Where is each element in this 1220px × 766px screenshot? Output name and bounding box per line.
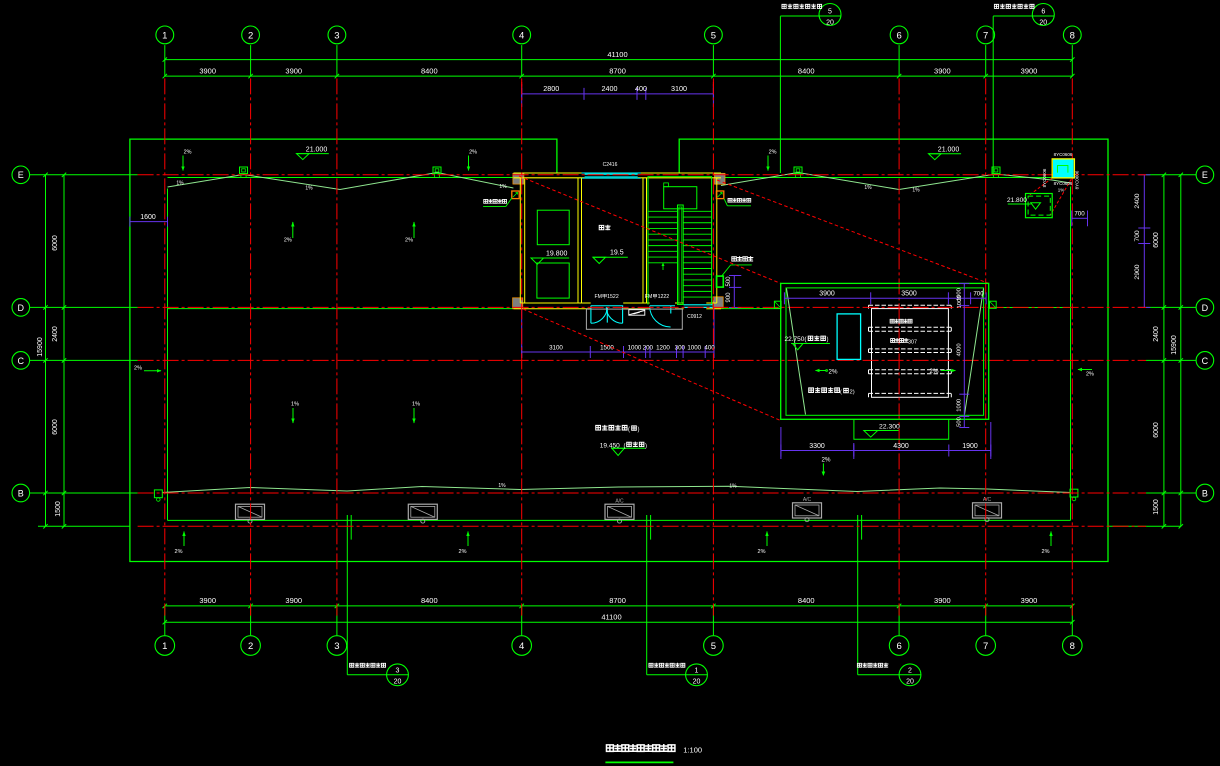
svg-text:21.800: 21.800 xyxy=(1007,197,1027,204)
svg-text:3500: 3500 xyxy=(901,291,917,298)
svg-text:15900: 15900 xyxy=(37,337,44,357)
svg-text:1000: 1000 xyxy=(628,344,642,351)
svg-text:2%: 2% xyxy=(1042,549,1050,555)
svg-text:3100: 3100 xyxy=(671,84,687,93)
svg-text:8YC0606: 8YC0606 xyxy=(1075,170,1080,189)
svg-text:41100: 41100 xyxy=(601,613,621,622)
svg-text:1000: 1000 xyxy=(957,399,963,412)
svg-text:3900: 3900 xyxy=(1021,596,1038,605)
svg-text:2): 2) xyxy=(850,390,855,396)
svg-text:(: ( xyxy=(840,390,842,396)
svg-text:2%: 2% xyxy=(1086,372,1094,378)
svg-text:1%: 1% xyxy=(864,185,872,191)
svg-text:2%: 2% xyxy=(284,238,292,244)
svg-text:5: 5 xyxy=(711,30,716,41)
svg-text:3: 3 xyxy=(334,641,339,652)
svg-text:3900: 3900 xyxy=(199,596,216,605)
svg-text:2%: 2% xyxy=(829,369,838,376)
svg-text:8700: 8700 xyxy=(609,66,626,75)
svg-text:2%: 2% xyxy=(769,150,777,156)
svg-text:2%: 2% xyxy=(459,549,467,555)
svg-text:8700: 8700 xyxy=(609,596,626,605)
svg-text:700: 700 xyxy=(1134,230,1141,242)
svg-text:21.000: 21.000 xyxy=(306,147,328,154)
svg-text:3900: 3900 xyxy=(199,66,216,75)
svg-text:19.800: 19.800 xyxy=(546,251,568,258)
svg-text:8400: 8400 xyxy=(798,596,815,605)
svg-text:7: 7 xyxy=(983,641,988,652)
svg-text:1900: 1900 xyxy=(962,443,978,450)
svg-text:6: 6 xyxy=(896,641,901,652)
svg-text:8400: 8400 xyxy=(798,66,815,75)
svg-text:21.000: 21.000 xyxy=(938,147,960,154)
svg-text:2400: 2400 xyxy=(602,84,618,93)
svg-text:6000: 6000 xyxy=(52,235,59,251)
svg-text:3100: 3100 xyxy=(549,344,563,351)
svg-text:41100: 41100 xyxy=(607,50,627,59)
svg-text:1000: 1000 xyxy=(957,288,963,301)
svg-text:1%: 1% xyxy=(412,402,420,408)
svg-text:700: 700 xyxy=(1074,211,1085,218)
svg-text:2%: 2% xyxy=(822,457,831,464)
svg-text:4000: 4000 xyxy=(957,343,963,356)
svg-text:8YC0606: 8YC0606 xyxy=(1054,152,1073,157)
svg-text:FM甲1522: FM甲1522 xyxy=(594,293,618,300)
svg-text:7: 7 xyxy=(983,30,988,41)
svg-text:8400: 8400 xyxy=(421,66,438,75)
svg-text:1%: 1% xyxy=(912,188,920,194)
svg-text:4300: 4300 xyxy=(893,443,909,450)
svg-text:4: 4 xyxy=(519,641,524,652)
svg-text:2%: 2% xyxy=(758,549,766,555)
svg-text:3900: 3900 xyxy=(934,66,951,75)
svg-text:3900: 3900 xyxy=(934,596,951,605)
svg-text:3: 3 xyxy=(334,30,339,41)
svg-text:20: 20 xyxy=(394,679,402,686)
svg-text:5: 5 xyxy=(828,9,832,16)
svg-text:15900: 15900 xyxy=(1171,335,1178,355)
svg-text:22.300: 22.300 xyxy=(879,424,900,431)
svg-text:20: 20 xyxy=(906,679,914,686)
svg-text:20: 20 xyxy=(1039,20,1047,27)
svg-text:A/C: A/C xyxy=(803,497,812,503)
svg-text:1: 1 xyxy=(695,668,699,675)
svg-text:C: C xyxy=(1202,356,1209,366)
svg-text:500: 500 xyxy=(957,417,963,427)
svg-text:C2416: C2416 xyxy=(603,162,618,168)
svg-text:8: 8 xyxy=(1070,30,1075,41)
svg-text:3: 3 xyxy=(396,668,400,675)
svg-text:1500: 1500 xyxy=(1153,499,1160,515)
svg-text:6000: 6000 xyxy=(52,419,59,435)
svg-text:D: D xyxy=(18,303,25,313)
svg-text:2%: 2% xyxy=(134,366,142,372)
svg-text:1600: 1600 xyxy=(140,214,156,221)
svg-text:2%: 2% xyxy=(175,549,183,555)
svg-text:2%: 2% xyxy=(184,150,192,156)
svg-text:3900: 3900 xyxy=(819,291,835,298)
svg-text:22.750(: 22.750( xyxy=(785,336,808,343)
svg-text:8400: 8400 xyxy=(421,596,438,605)
svg-text:1%: 1% xyxy=(1058,188,1065,193)
svg-text:6: 6 xyxy=(1041,9,1045,16)
svg-text:2: 2 xyxy=(248,30,253,41)
svg-text:2800: 2800 xyxy=(543,84,559,93)
svg-text:C0912: C0912 xyxy=(687,314,702,320)
svg-text:20: 20 xyxy=(826,20,834,27)
svg-text:2: 2 xyxy=(248,641,253,652)
svg-text:(: ( xyxy=(628,427,630,433)
svg-text:900: 900 xyxy=(726,292,732,303)
svg-text:1%: 1% xyxy=(499,184,507,190)
svg-text:E: E xyxy=(18,170,24,180)
svg-text:1000: 1000 xyxy=(687,344,701,351)
svg-text:1200: 1200 xyxy=(656,344,670,351)
svg-text:FM甲1222: FM甲1222 xyxy=(645,293,669,300)
svg-text:5: 5 xyxy=(711,641,716,652)
svg-text:C: C xyxy=(18,356,25,366)
svg-text:6000: 6000 xyxy=(1153,232,1160,248)
svg-text:3900: 3900 xyxy=(285,66,302,75)
svg-text:2400: 2400 xyxy=(1153,326,1160,342)
svg-text:1%: 1% xyxy=(176,181,184,187)
svg-text:307: 307 xyxy=(908,340,917,346)
svg-text:2%: 2% xyxy=(930,368,939,375)
svg-text:A/C: A/C xyxy=(983,497,992,503)
svg-text:B: B xyxy=(1202,488,1208,498)
svg-text:): ) xyxy=(638,427,640,433)
svg-text:2%: 2% xyxy=(469,150,477,156)
svg-text:2: 2 xyxy=(908,668,912,675)
svg-text:2400: 2400 xyxy=(1134,193,1141,208)
svg-text:1:100: 1:100 xyxy=(683,746,702,755)
svg-text:): ) xyxy=(645,443,647,449)
svg-text:8: 8 xyxy=(1070,641,1075,652)
svg-text:500: 500 xyxy=(726,276,732,287)
svg-text:1500: 1500 xyxy=(55,501,62,517)
svg-text:1%: 1% xyxy=(729,484,737,490)
svg-text:1%: 1% xyxy=(305,186,313,192)
svg-text:200: 200 xyxy=(643,344,654,351)
svg-text:A/C: A/C xyxy=(615,498,624,504)
svg-text:300: 300 xyxy=(675,344,686,351)
svg-text:4: 4 xyxy=(519,30,524,41)
svg-text:1%: 1% xyxy=(291,402,299,408)
svg-text:2400: 2400 xyxy=(52,326,59,342)
svg-text:1%: 1% xyxy=(498,483,506,489)
svg-text:3300: 3300 xyxy=(809,443,825,450)
svg-text:E: E xyxy=(1202,170,1208,180)
svg-text:3900: 3900 xyxy=(285,596,302,605)
svg-text:19.450: 19.450 xyxy=(600,442,620,449)
svg-text:D: D xyxy=(1202,303,1209,313)
svg-text:19.5: 19.5 xyxy=(610,250,624,257)
svg-text:1: 1 xyxy=(162,641,167,652)
svg-text:2900: 2900 xyxy=(1134,264,1141,279)
svg-text:B: B xyxy=(18,488,24,498)
svg-text:8YC0606: 8YC0606 xyxy=(1054,181,1073,186)
svg-text:): ) xyxy=(827,337,829,343)
svg-text:8YC0606: 8YC0606 xyxy=(1042,168,1047,187)
svg-text:6: 6 xyxy=(896,30,901,41)
svg-text:6000: 6000 xyxy=(1153,422,1160,438)
svg-text:2%: 2% xyxy=(405,238,413,244)
svg-text:20: 20 xyxy=(693,679,701,686)
svg-text:400: 400 xyxy=(635,84,647,93)
svg-text:3900: 3900 xyxy=(1021,66,1038,75)
svg-text:(: ( xyxy=(624,443,626,449)
svg-text:1: 1 xyxy=(162,30,167,41)
svg-text:700: 700 xyxy=(973,291,984,298)
